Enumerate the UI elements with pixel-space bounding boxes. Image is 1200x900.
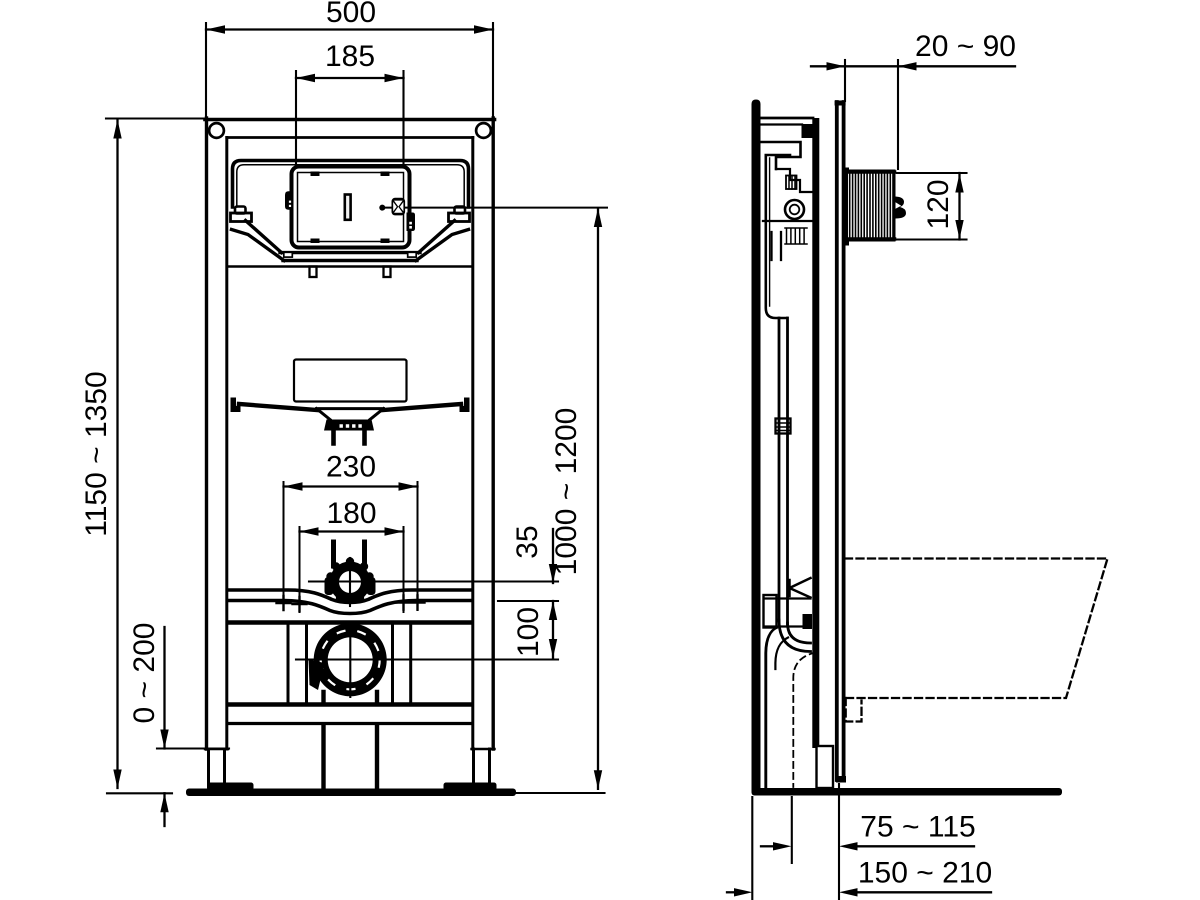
svg-text:20 ~ 90: 20 ~ 90 bbox=[915, 30, 1016, 63]
svg-text:100: 100 bbox=[512, 607, 545, 657]
svg-text:75 ~ 115: 75 ~ 115 bbox=[860, 811, 975, 844]
svg-text:1150 ~ 1350: 1150 ~ 1350 bbox=[80, 371, 113, 536]
svg-text:35: 35 bbox=[511, 525, 544, 558]
svg-text:1000 ~ 1200: 1000 ~ 1200 bbox=[550, 408, 583, 576]
svg-text:150 ~ 210: 150 ~ 210 bbox=[858, 857, 992, 890]
svg-text:180: 180 bbox=[326, 497, 376, 530]
svg-text:185: 185 bbox=[325, 40, 375, 73]
svg-text:500: 500 bbox=[326, 0, 376, 29]
svg-text:230: 230 bbox=[326, 451, 376, 484]
svg-text:120: 120 bbox=[922, 179, 955, 229]
svg-text:0 ~ 200: 0 ~ 200 bbox=[128, 623, 161, 724]
